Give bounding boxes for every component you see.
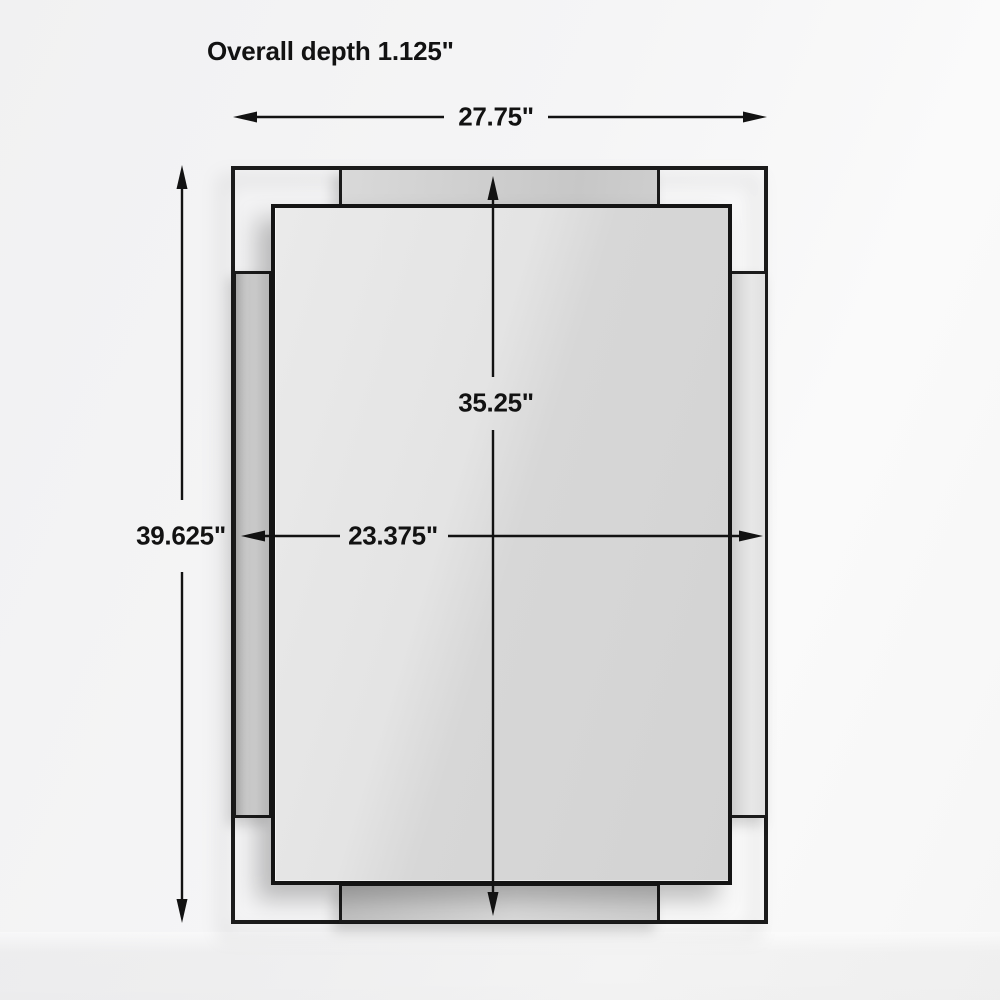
inner-width-label: 23.375" — [348, 521, 438, 552]
right-mirror-panel — [728, 271, 768, 818]
left-mirror-panel — [233, 271, 272, 818]
top-mirror-panel — [339, 167, 660, 208]
product-dimension-diagram: Overall depth 1.125" 27.75" 39.625" 35.2… — [0, 0, 1000, 1000]
overall-depth-label: Overall depth 1.125" — [207, 36, 454, 67]
bottom-mirror-panel — [339, 883, 660, 923]
overall-width-label: 27.75" — [458, 102, 534, 133]
inner-height-label: 35.25" — [458, 388, 534, 419]
center-mirror — [271, 204, 732, 885]
overall-height-label: 39.625" — [136, 521, 226, 552]
